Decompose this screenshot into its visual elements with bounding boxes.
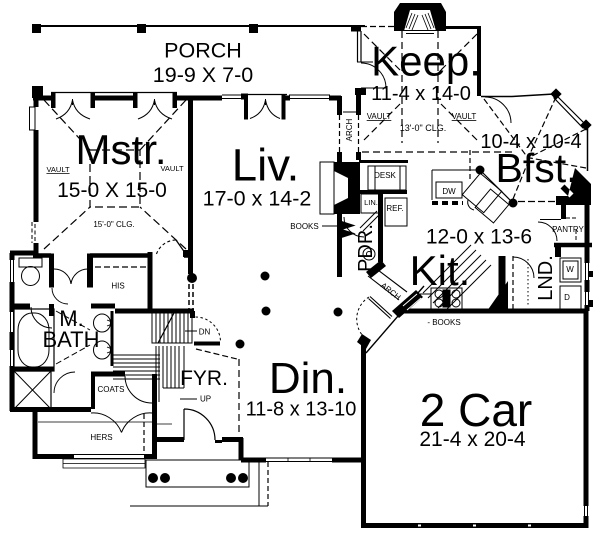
svg-text:Bfst.: Bfst. bbox=[495, 145, 577, 191]
svg-text:15'-0" CLG.: 15'-0" CLG. bbox=[93, 220, 134, 229]
svg-text:UP: UP bbox=[200, 395, 211, 404]
svg-text:VAULT: VAULT bbox=[367, 112, 392, 121]
svg-text:COATS: COATS bbox=[98, 385, 125, 394]
svg-text:REF.: REF. bbox=[386, 204, 403, 213]
svg-text:BOOKS: BOOKS bbox=[290, 222, 318, 231]
svg-text:HIS: HIS bbox=[111, 282, 124, 291]
svg-text:12-0 x 13-6: 12-0 x 13-6 bbox=[426, 226, 532, 249]
svg-text:Kit.: Kit. bbox=[410, 247, 471, 294]
svg-text:PANTRY: PANTRY bbox=[552, 225, 584, 234]
svg-text:D: D bbox=[564, 293, 570, 302]
svg-text:LND.: LND. bbox=[535, 255, 557, 301]
svg-text:Din.: Din. bbox=[269, 354, 347, 403]
svg-text:13'-0" CLG.: 13'-0" CLG. bbox=[400, 123, 446, 133]
svg-text:ARCH: ARCH bbox=[345, 118, 354, 141]
svg-text:DESK: DESK bbox=[374, 171, 396, 180]
svg-text:VAULT: VAULT bbox=[46, 165, 69, 174]
svg-text:BATH: BATH bbox=[42, 327, 99, 352]
svg-text:PORCH: PORCH bbox=[164, 39, 242, 63]
svg-text:Mstr.: Mstr. bbox=[76, 126, 167, 173]
svg-text:17-0 x 14-2: 17-0 x 14-2 bbox=[203, 187, 312, 211]
svg-text:Liv.: Liv. bbox=[232, 140, 299, 191]
svg-text:21-4 x 20-4: 21-4 x 20-4 bbox=[419, 428, 526, 451]
svg-text:PDR.: PDR. bbox=[355, 224, 377, 272]
svg-text:11-4 x 14-0: 11-4 x 14-0 bbox=[371, 83, 471, 105]
svg-text:11-8 x 13-10: 11-8 x 13-10 bbox=[246, 399, 357, 421]
svg-text:15-0 X 15-0: 15-0 X 15-0 bbox=[57, 179, 167, 202]
svg-text:DN: DN bbox=[199, 328, 211, 337]
svg-text:- BOOKS: - BOOKS bbox=[427, 318, 460, 327]
svg-text:W: W bbox=[566, 265, 574, 274]
svg-text:VAULT: VAULT bbox=[452, 112, 477, 121]
svg-text:Keep.: Keep. bbox=[371, 38, 481, 85]
svg-text:HERS: HERS bbox=[90, 433, 112, 442]
svg-text:19-9 X 7-0: 19-9 X 7-0 bbox=[153, 63, 253, 87]
svg-text:DW: DW bbox=[442, 187, 456, 196]
svg-text:FYR.: FYR. bbox=[180, 367, 228, 390]
svg-text:LIN.: LIN. bbox=[364, 198, 378, 207]
svg-text:VAULT: VAULT bbox=[160, 164, 183, 173]
